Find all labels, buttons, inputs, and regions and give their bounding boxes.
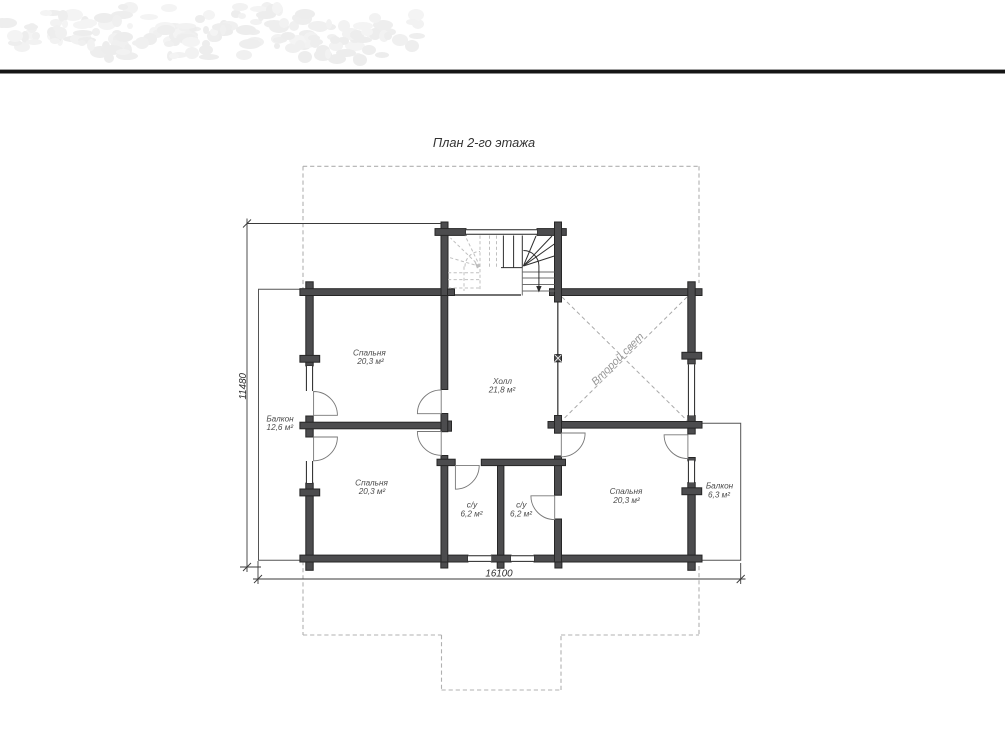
svg-text:6,3 м²: 6,3 м² [708,491,730,500]
svg-text:Балкон: Балкон [266,414,294,423]
svg-text:Спальня: Спальня [610,487,643,496]
svg-text:16100: 16100 [485,569,513,580]
svg-text:План 2-го этажа: План 2-го этажа [433,135,535,150]
svg-text:20,3 м²: 20,3 м² [612,496,640,505]
svg-text:Спальня: Спальня [355,478,388,487]
svg-text:12,6 м²: 12,6 м² [267,423,294,432]
svg-text:Спальня: Спальня [353,349,386,358]
svg-text:6,2 м²: 6,2 м² [461,509,483,518]
svg-text:с/у: с/у [516,500,527,509]
svg-text:Холл: Холл [492,377,512,386]
svg-text:11480: 11480 [238,372,249,399]
svg-text:20,3 м²: 20,3 м² [356,357,384,366]
svg-text:Балкон: Балкон [706,482,734,491]
svg-text:6,2 м²: 6,2 м² [510,509,532,518]
svg-text:с/у: с/у [467,500,478,509]
svg-text:21,8 м²: 21,8 м² [488,386,516,395]
svg-text:20,3 м²: 20,3 м² [358,487,386,496]
